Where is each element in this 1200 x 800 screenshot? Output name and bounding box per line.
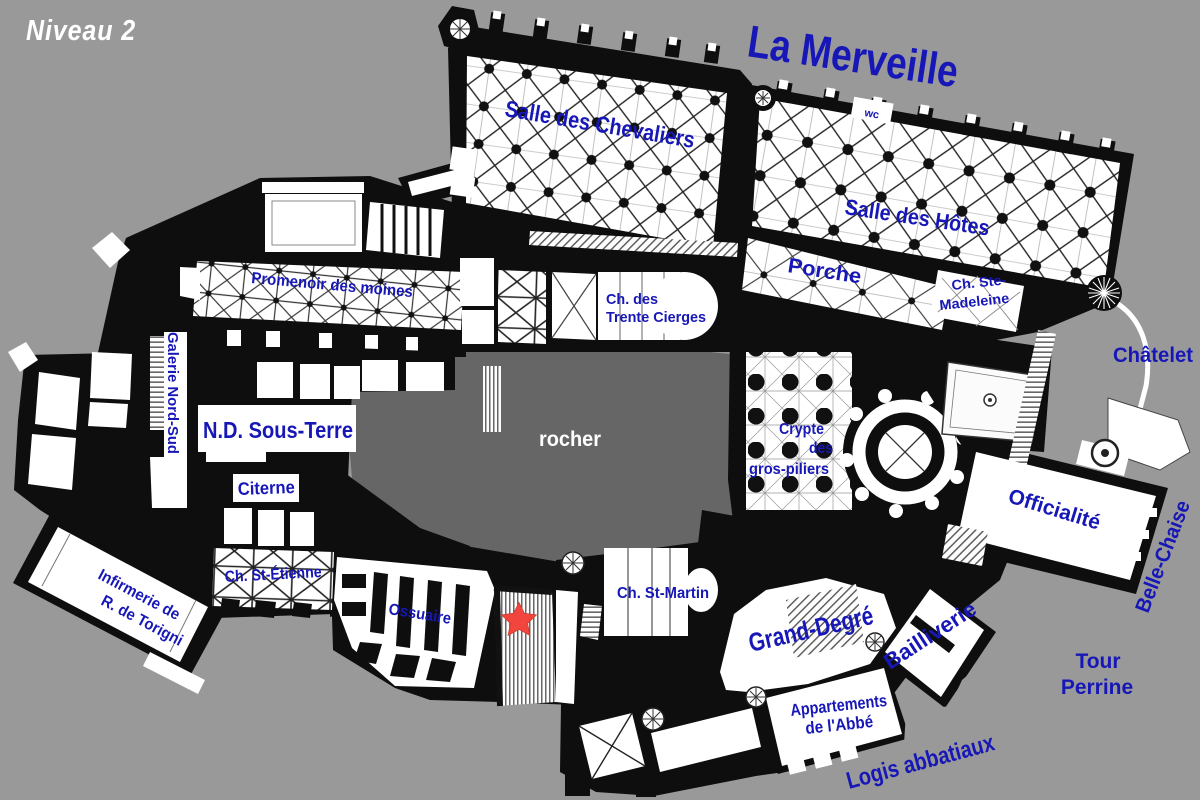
svg-text:N.D. Sous-Terre: N.D. Sous-Terre [203, 417, 353, 443]
svg-text:Ch. St-Martin: Ch. St-Martin [617, 585, 709, 602]
svg-text:des: des [809, 440, 833, 457]
svg-text:gros-piliers: gros-piliers [749, 461, 829, 478]
svg-text:Châtelet: Châtelet [1113, 344, 1193, 367]
svg-text:Trente Cierges: Trente Cierges [606, 309, 706, 326]
svg-text:Citerne: Citerne [237, 477, 295, 499]
svg-text:Tour: Tour [1075, 650, 1120, 673]
svg-text:Crypte: Crypte [779, 421, 824, 438]
svg-text:rocher: rocher [539, 428, 601, 451]
svg-text:Ch. des: Ch. des [606, 291, 658, 308]
svg-text:Galerie Nord-Sud: Galerie Nord-Sud [164, 332, 181, 454]
svg-text:Niveau 2: Niveau 2 [26, 15, 136, 47]
svg-text:Perrine: Perrine [1061, 676, 1133, 699]
